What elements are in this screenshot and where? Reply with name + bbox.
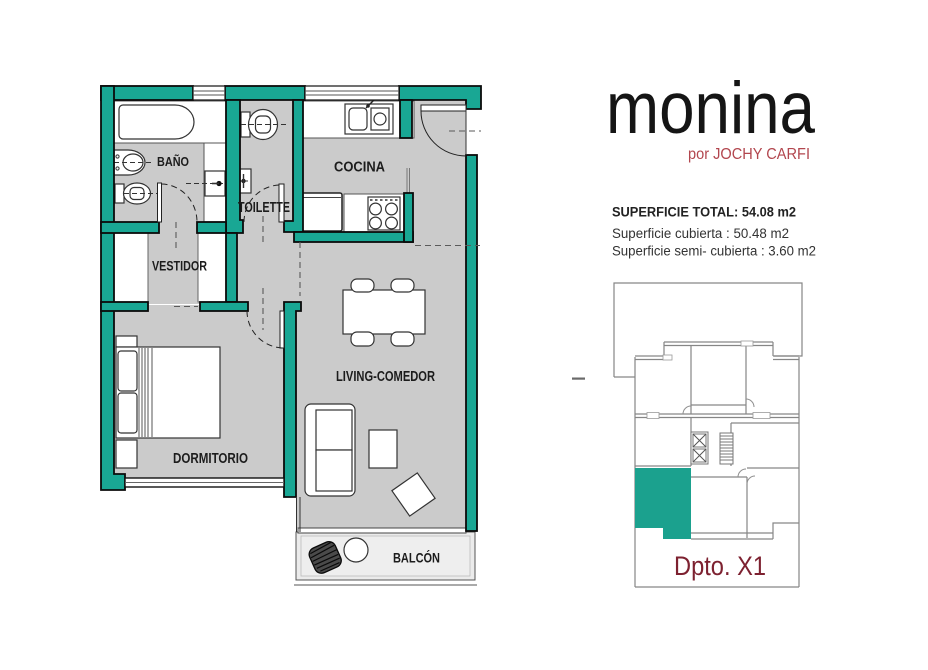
- svg-text:LIVING-COMEDOR: LIVING-COMEDOR: [336, 369, 435, 385]
- svg-text:Dpto. X1: Dpto. X1: [674, 551, 766, 581]
- svg-text:TOILETTE: TOILETTE: [238, 200, 290, 216]
- svg-text:BALCÓN: BALCÓN: [393, 551, 440, 566]
- svg-text:Superficie semi- cubierta : 3.: Superficie semi- cubierta : 3.60 m2: [612, 244, 816, 260]
- svg-text:Superficie cubierta : 50.48 m2: Superficie cubierta : 50.48 m2: [612, 226, 789, 242]
- svg-text:COCINA: COCINA: [334, 160, 385, 176]
- svg-text:SUPERFICIE TOTAL: 54.08 m2: SUPERFICIE TOTAL: 54.08 m2: [612, 205, 796, 221]
- svg-text:monina: monina: [606, 68, 815, 149]
- svg-text:VESTIDOR: VESTIDOR: [152, 258, 207, 274]
- svg-text:DORMITORIO: DORMITORIO: [173, 451, 248, 467]
- svg-text:por JOCHY CARFI: por JOCHY CARFI: [688, 146, 810, 163]
- svg-text:BAÑO: BAÑO: [157, 154, 189, 169]
